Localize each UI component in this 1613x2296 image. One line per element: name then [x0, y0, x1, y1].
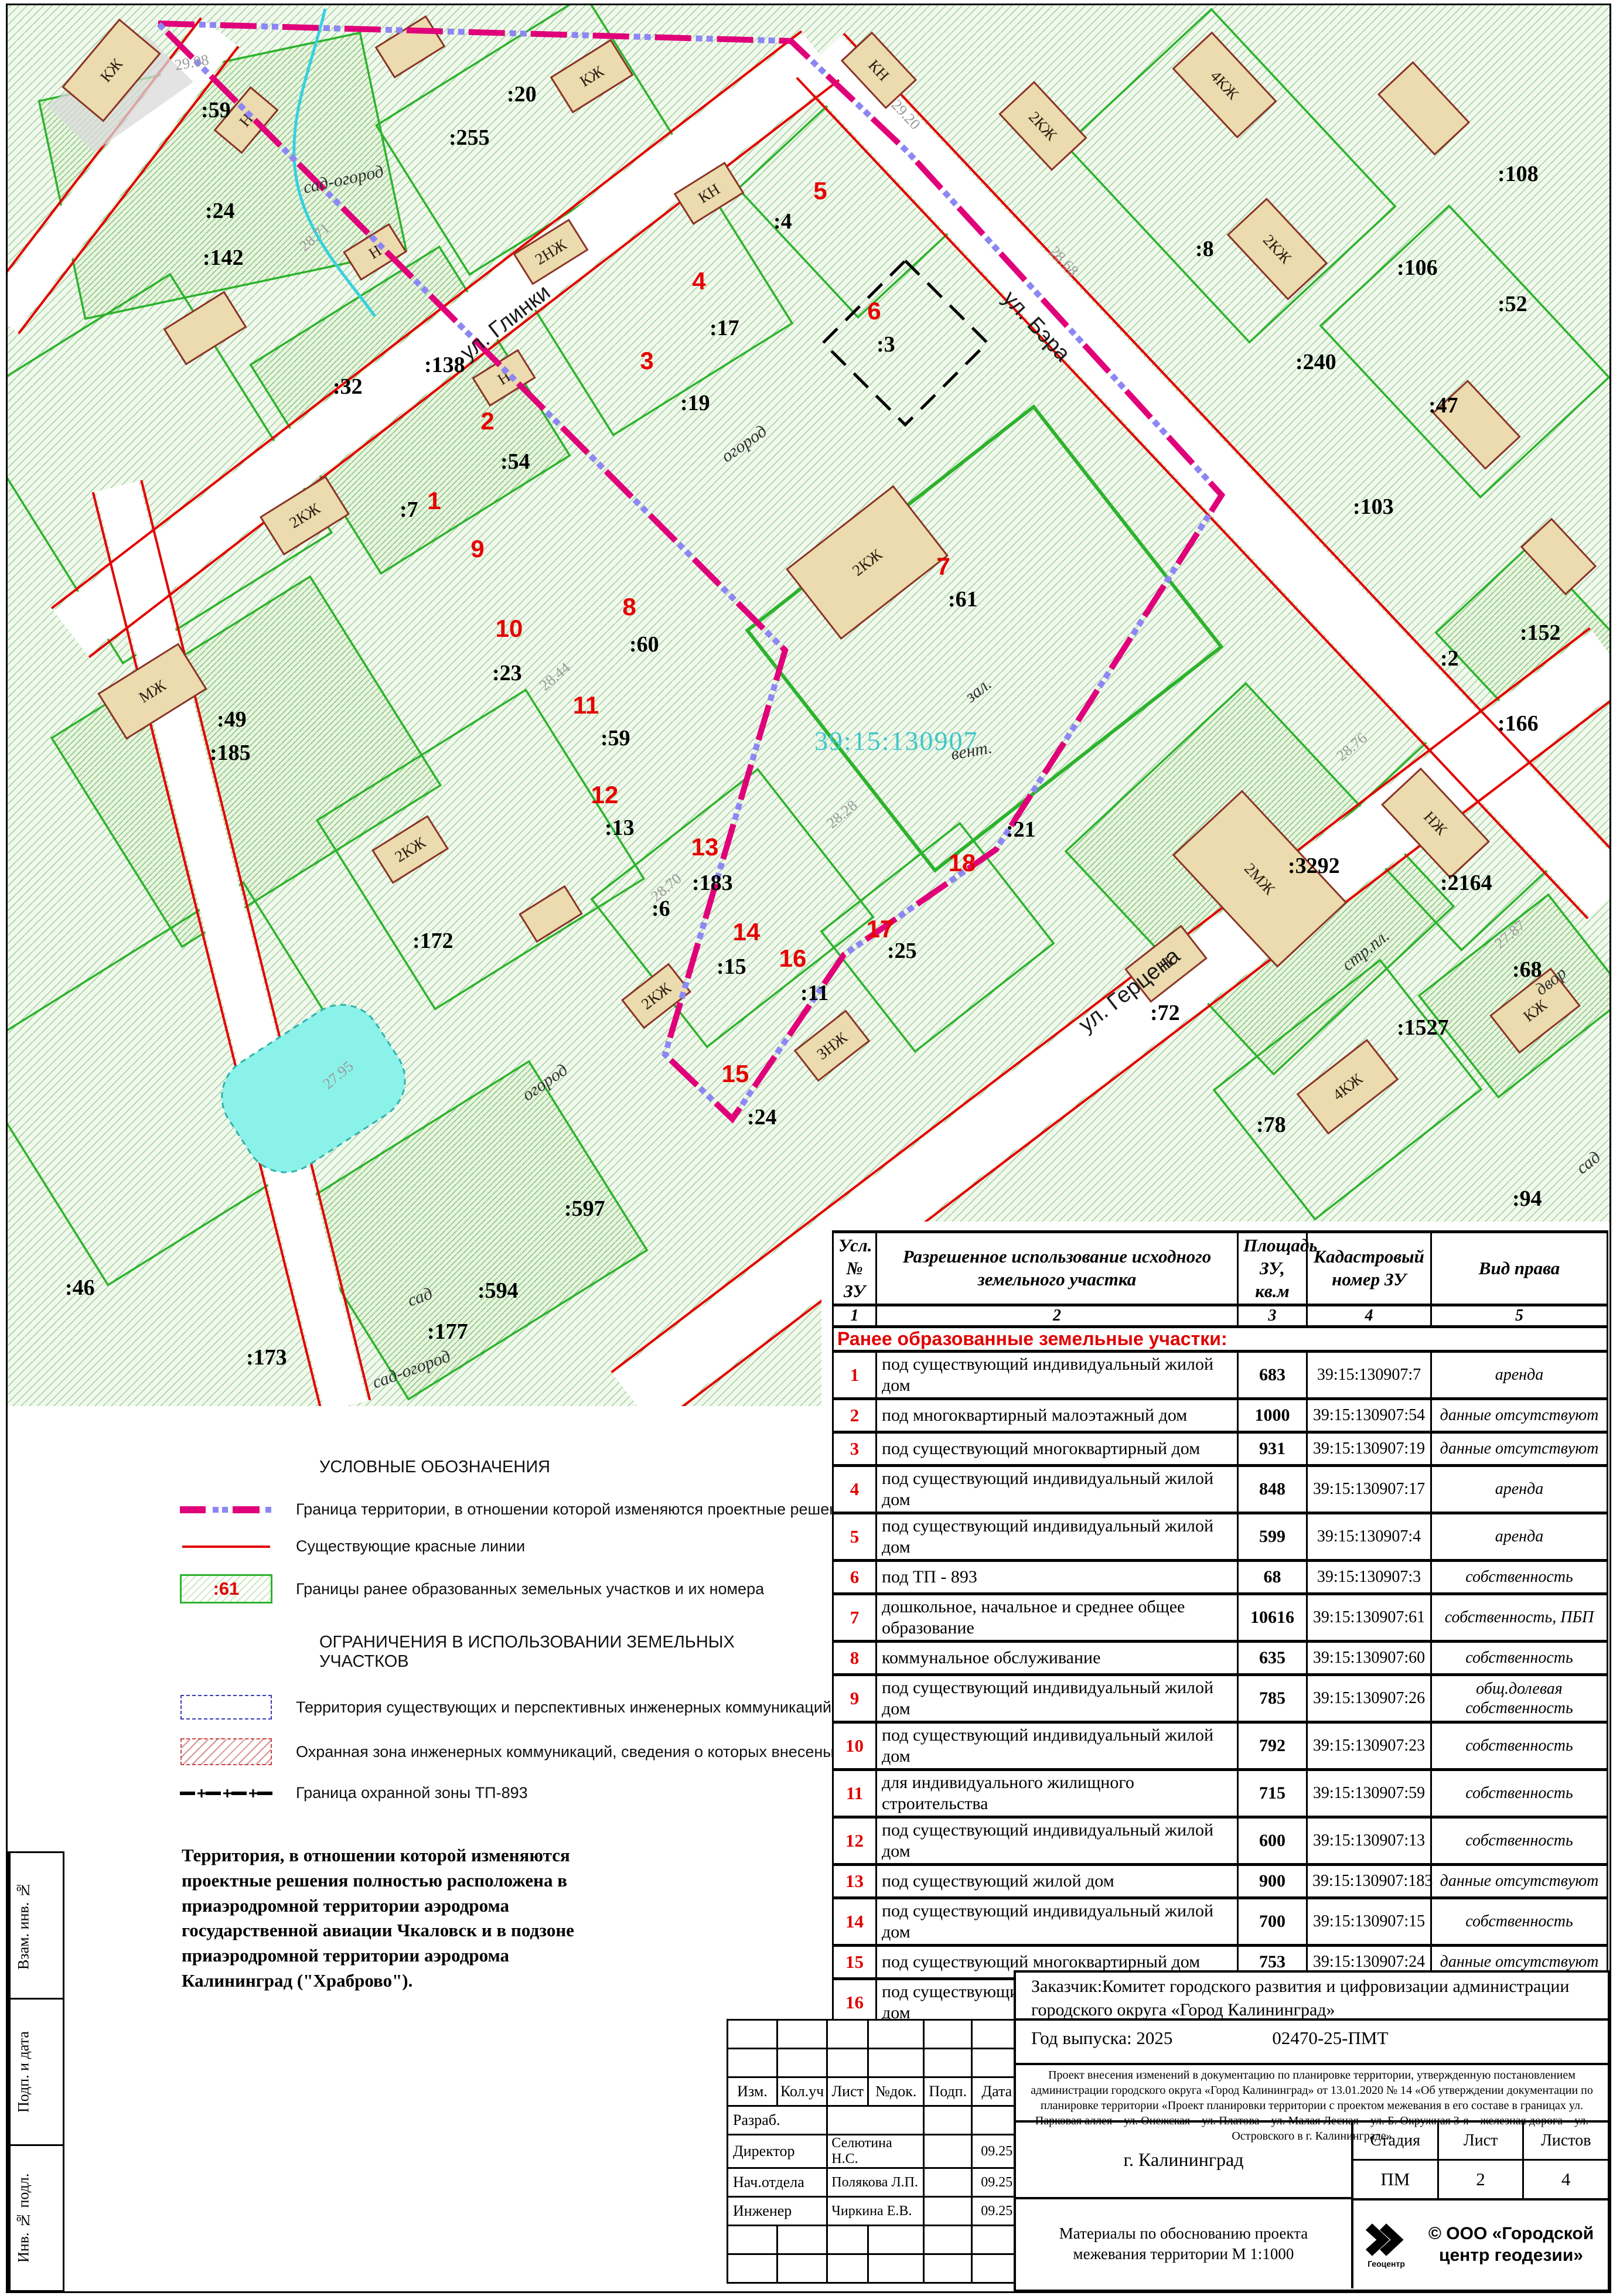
- legend-item-label: Границы ранее образованных земельных уча…: [296, 1580, 764, 1598]
- parcel-number-label: :142: [203, 245, 244, 270]
- parcel-number-label: :54: [500, 449, 530, 474]
- cell-area: 900: [1238, 1865, 1307, 1898]
- legend-item-label: Существующие красные линии: [296, 1537, 525, 1555]
- legend-item: Территория существующих и перспективных …: [180, 1695, 824, 1720]
- legend-restriction-items: Территория существующих и перспективных …: [180, 1695, 824, 1802]
- map-legend: УСЛОВНЫЕ ОБОЗНАЧЕНИЯ Граница территории,…: [180, 1458, 824, 1821]
- cell-cadastral-number: 39:15:130907:183: [1307, 1865, 1431, 1898]
- side-strip-cell: Взам. инв. №: [7, 1851, 64, 1998]
- cell-right-type: аренда: [1431, 1352, 1608, 1399]
- cell-area: 683: [1238, 1352, 1307, 1399]
- parcel-number-label: :177: [427, 1319, 468, 1344]
- parcel-number-label: :52: [1498, 292, 1527, 316]
- empty-cell: [777, 2254, 827, 2283]
- parcel-number-label: :20: [507, 82, 537, 107]
- cell-number: 8: [833, 1642, 877, 1675]
- table-colnum-row: 12345: [833, 1305, 1608, 1327]
- parcel-number-label: :3292: [1288, 854, 1340, 878]
- legend-item: Граница территории, в отношении которой …: [180, 1500, 824, 1519]
- cell-right-type: собственность: [1431, 1722, 1608, 1770]
- cell-number: 13: [833, 1865, 877, 1898]
- parcel-red-number: 12: [591, 781, 619, 808]
- legend-item-label: Охранная зона инженерных коммуникаций, с…: [296, 1743, 892, 1761]
- cell-permitted-use: дошкольное, начальное и среднее общее об…: [877, 1594, 1238, 1642]
- table-column-number: 4: [1307, 1305, 1431, 1327]
- title-block-bottom: г. Калининград Материалы по обоснованию …: [1016, 2123, 1608, 2288]
- parcel-number-label: :61: [948, 587, 978, 612]
- cell-area: 715: [1238, 1770, 1307, 1817]
- parcel-number-label: :78: [1256, 1113, 1286, 1137]
- cell-permitted-use: под существующий индивидуальный жилой до…: [877, 1817, 1238, 1865]
- cell-right-type: собственность: [1431, 1817, 1608, 1865]
- empty-cell: [777, 2226, 827, 2254]
- parcel-number-label: :594: [478, 1278, 519, 1303]
- geocentr-logo-icon: Геоцентр: [1362, 2221, 1411, 2268]
- parcel-number-label: :255: [449, 125, 490, 150]
- stage-header: Лист: [1439, 2123, 1525, 2159]
- cell-cadastral-number: 39:15:130907:54: [1307, 1399, 1431, 1432]
- parcel-number-label: :11: [800, 981, 829, 1005]
- cell-area: 1000: [1238, 1399, 1307, 1432]
- parcel-number-label: :173: [246, 1345, 287, 1370]
- cell-area: 600: [1238, 1817, 1307, 1865]
- parcel-number-label: :32: [333, 374, 363, 399]
- signature-sign: [924, 2106, 972, 2135]
- parcel-red-number: 14: [733, 918, 761, 946]
- cell-number: 6: [833, 1561, 877, 1594]
- parcel-number-label: :17: [710, 316, 739, 340]
- side-strip-label: Подп. и дата: [9, 2000, 37, 2144]
- cell-cadastral-number: 39:15:130907:13: [1307, 1817, 1431, 1865]
- table-column-number: 2: [877, 1305, 1238, 1327]
- cell-cadastral-number: 39:15:130907:60: [1307, 1642, 1431, 1675]
- parcel-number-label: :72: [1150, 1001, 1180, 1025]
- parcel-red-number: 10: [496, 615, 523, 642]
- cell-number: 15: [833, 1946, 877, 1979]
- empty-cell: [728, 2020, 777, 2049]
- parcel-number-label: :3: [877, 332, 895, 357]
- signature-sign: [924, 2168, 972, 2197]
- parcel-red-number: 11: [573, 691, 599, 719]
- parcel-red-number: 15: [722, 1060, 749, 1087]
- city-cell: г. Калининград: [1016, 2123, 1351, 2199]
- signature-row: ДиректорСелютина Н.С.09.25: [728, 2135, 1022, 2168]
- parcel-number-label: :59: [201, 98, 231, 122]
- parcel-number-label: :4: [773, 209, 792, 234]
- parcel-number-label: :1527: [1397, 1015, 1449, 1040]
- table-row: 2под многоквартирный малоэтажный дом1000…: [833, 1399, 1608, 1432]
- cell-right-type: аренда: [1431, 1466, 1608, 1513]
- parcel-number-label: :24: [747, 1105, 777, 1130]
- cell-right-type: данные отсутствуют: [1431, 1865, 1608, 1898]
- cell-permitted-use: под многоквартирный малоэтажный дом: [877, 1399, 1238, 1432]
- cell-right-type: собственность, ПБП: [1431, 1594, 1608, 1642]
- table-row: 11для индивидуального жилищного строител…: [833, 1770, 1608, 1817]
- cell-right-type: собственность: [1431, 1770, 1608, 1817]
- signature-col-header: Изм.: [728, 2077, 777, 2106]
- cell-cadastral-number: 39:15:130907:15: [1307, 1898, 1431, 1946]
- cell-number: 7: [833, 1594, 877, 1642]
- parcel-number-label: :19: [680, 391, 710, 415]
- parcel-number-label: :2164: [1440, 871, 1492, 895]
- parcel-red-number: 7: [936, 552, 950, 580]
- table-column-number: 1: [833, 1305, 877, 1327]
- cell-right-type: собственность: [1431, 1898, 1608, 1946]
- cell-area: 68: [1238, 1561, 1307, 1594]
- signature-col-header: Кол.уч: [777, 2077, 827, 2106]
- cell-permitted-use: под ТП - 893: [877, 1561, 1238, 1594]
- airfield-note: Территория, в отношении которой изменяют…: [182, 1843, 592, 1994]
- cell-cadastral-number: 39:15:130907:26: [1307, 1675, 1431, 1722]
- cell-number: 4: [833, 1466, 877, 1513]
- side-strip: Взам. инв. №Подп. и датаИнв. № подл.: [7, 1851, 64, 2292]
- signature-col-header: №док.: [868, 2077, 924, 2106]
- cell-area: 700: [1238, 1898, 1307, 1946]
- signature-col-header: Лист: [827, 2077, 868, 2106]
- cell-area: 599: [1238, 1513, 1307, 1561]
- parcel-red-number: 16: [779, 944, 807, 972]
- cell-number: 11: [833, 1770, 877, 1817]
- empty-cell: [924, 2254, 972, 2283]
- parcel-number-label: :13: [605, 816, 635, 840]
- cell-cadastral-number: 39:15:130907:4: [1307, 1513, 1431, 1561]
- legend-item-label: Граница охранной зоны ТП-893: [296, 1784, 528, 1802]
- table-row: 4под существующий индивидуальный жилой д…: [833, 1466, 1608, 1513]
- signature-empty-row: [728, 2226, 1022, 2254]
- cell-number: 12: [833, 1817, 877, 1865]
- cell-permitted-use: под существующий многоквартирный дом: [877, 1432, 1238, 1466]
- empty-cell: [827, 2254, 868, 2283]
- signature-header-row: Изм.Кол.учЛист№док.Подп.Дата: [728, 2077, 1022, 2106]
- parcel-number-label: :59: [601, 726, 630, 750]
- empty-cell: [728, 2049, 777, 2077]
- project-code: 02470-25-ПМТ: [1272, 2028, 1388, 2049]
- parcel-red-number: 4: [692, 267, 706, 295]
- signature-sign: [924, 2197, 972, 2226]
- empty-cell: [827, 2049, 868, 2077]
- red-line-symbol: [180, 1546, 272, 1548]
- cell-right-type: собственность: [1431, 1642, 1608, 1675]
- title-block: Заказчик:Комитет городского развития и ц…: [1014, 1970, 1610, 2292]
- empty-cell: [827, 2020, 868, 2049]
- signature-col-header: Подп.: [924, 2077, 972, 2106]
- parcel-number-label: :106: [1397, 255, 1438, 280]
- empty-cell: [777, 2049, 827, 2077]
- parcel-red-number: 6: [867, 297, 881, 325]
- parcel-red-number: 3: [640, 347, 653, 374]
- cell-permitted-use: под существующий индивидуальный жилой до…: [877, 1898, 1238, 1946]
- table-column-header: Кадастровый номер ЗУ: [1307, 1232, 1431, 1305]
- legend-items: Граница территории, в отношении которой …: [180, 1500, 824, 1604]
- year-of-issue: Год выпуска: 2025: [1031, 2028, 1172, 2049]
- stage-value: 4: [1524, 2161, 1608, 2198]
- parcel-number-label: :152: [1520, 620, 1561, 645]
- parcel-number-label: :138: [424, 353, 465, 377]
- cell-number: 10: [833, 1722, 877, 1770]
- empty-cell: [868, 2049, 924, 2077]
- cell-cadastral-number: 39:15:130907:23: [1307, 1722, 1431, 1770]
- table-row: 3под существующий многоквартирный дом931…: [833, 1432, 1608, 1466]
- cell-permitted-use: под существующий индивидуальный жилой до…: [877, 1675, 1238, 1722]
- cell-area: 635: [1238, 1642, 1307, 1675]
- legend-item-label: Граница территории, в отношении которой …: [296, 1500, 855, 1519]
- table-row: 13под существующий жилой дом90039:15:130…: [833, 1865, 1608, 1898]
- empty-cell: [728, 2226, 777, 2254]
- parcel-red-number: 5: [813, 177, 827, 204]
- parcel-number-label: :24: [205, 199, 235, 223]
- table-column-header: Вид права: [1431, 1232, 1608, 1305]
- signature-name: Чиркина Е.В.: [827, 2197, 924, 2226]
- signature-name: [827, 2106, 924, 2135]
- parcel-number-label: :172: [412, 929, 453, 953]
- table-row: 10под существующий индивидуальный жилой …: [833, 1722, 1608, 1770]
- cell-permitted-use: коммунальное обслуживание: [877, 1642, 1238, 1675]
- parcel-red-number: 18: [949, 849, 976, 876]
- signature-row: Разраб.: [728, 2106, 1022, 2135]
- legend-item: Граница охранной зоны ТП-893: [180, 1784, 824, 1802]
- cell-number: 1: [833, 1352, 877, 1399]
- cell-number: 2: [833, 1399, 877, 1432]
- stage-header: Стадия: [1353, 2123, 1439, 2159]
- cell-permitted-use: для индивидуального жилищного строительс…: [877, 1770, 1238, 1817]
- empty-cell: [924, 2020, 972, 2049]
- parcel-red-number: 13: [691, 833, 719, 861]
- tp-zone-boundary-symbol: [180, 1787, 272, 1800]
- cell-cadastral-number: 39:15:130907:61: [1307, 1594, 1431, 1642]
- signature-role: Разраб.: [728, 2106, 827, 2135]
- legend-title: УСЛОВНЫЕ ОБОЗНАЧЕНИЯ: [319, 1458, 824, 1477]
- stage-value-row: ПМ24: [1353, 2161, 1608, 2201]
- parcel-red-number: 17: [867, 915, 894, 943]
- stage-value: 2: [1439, 2161, 1525, 2198]
- parcel-red-number: 8: [622, 593, 636, 620]
- parcel-number-label: :94: [1512, 1186, 1542, 1211]
- utility-protection-zone-symbol: [180, 1738, 272, 1765]
- cadastral-map: КЖНКЖКН2КЖ4КЖ2КЖ2НЖКН2КЖМЖ2КЖ2МЖНЖКЖ4КЖН…: [7, 5, 1610, 1406]
- cell-cadastral-number: 39:15:130907:3: [1307, 1561, 1431, 1594]
- table-row: 5под существующий индивидуальный жилой д…: [833, 1513, 1608, 1561]
- table-row: 8коммунальное обслуживание63539:15:13090…: [833, 1642, 1608, 1675]
- cell-right-type: общ.долевая собственность: [1431, 1675, 1608, 1722]
- stage-value: ПМ: [1353, 2161, 1439, 2198]
- signature-name: Полякова Л.П.: [827, 2168, 924, 2197]
- signature-row: Нач.отделаПолякова Л.П.09.25: [728, 2168, 1022, 2197]
- copyright-text: © ООО «Городской центр геодезии»: [1419, 2223, 1608, 2267]
- table-header-row: Усл. № ЗУРазрешенное использование исход…: [833, 1232, 1608, 1305]
- cell-permitted-use: под существующий индивидуальный жилой до…: [877, 1466, 1238, 1513]
- signature-role: Инженер: [728, 2197, 827, 2226]
- parcel-red-number: 1: [427, 487, 441, 514]
- year-row: Год выпуска: 2025 02470-25-ПМТ: [1016, 2021, 1608, 2065]
- table-row: 1под существующий индивидуальный жилой д…: [833, 1352, 1608, 1399]
- parcel-number-label: :47: [1428, 393, 1458, 418]
- parcel-number-label: :7: [400, 497, 418, 522]
- signature-role: Нач.отдела: [728, 2168, 827, 2197]
- signature-name: Селютина Н.С.: [827, 2135, 924, 2168]
- table-column-number: 5: [1431, 1305, 1608, 1327]
- empty-cell: [868, 2226, 924, 2254]
- empty-cell: [777, 2020, 827, 2049]
- side-strip-cell: Подп. и дата: [7, 1998, 64, 2144]
- legend-item: :61Границы ранее образованных земельных …: [180, 1574, 824, 1604]
- empty-cell: [728, 2254, 777, 2283]
- parcel-number-label: :597: [564, 1196, 605, 1221]
- side-strip-label: Взам. инв. №: [9, 1853, 37, 1998]
- cell-permitted-use: под существующий индивидуальный жилой до…: [877, 1352, 1238, 1399]
- cell-right-type: данные отсутствуют: [1431, 1399, 1608, 1432]
- table-section-header: Ранее образованные земельные участки:: [833, 1327, 1608, 1352]
- parcel-number-label: :49: [217, 707, 247, 732]
- parcel-number-label: :103: [1353, 494, 1394, 519]
- customer-line: Заказчик:Комитет городского развития и ц…: [1016, 1973, 1608, 2021]
- side-strip-cell: Инв. № подл.: [7, 2144, 64, 2292]
- signature-empty-row: [728, 2020, 1022, 2049]
- table-row: 14под существующий индивидуальный жилой …: [833, 1898, 1608, 1946]
- table-column-header: Площадь ЗУ, кв.м: [1238, 1232, 1307, 1305]
- legend-item-label: Территория существующих и перспективных …: [296, 1698, 831, 1717]
- parcel-number-label: :46: [65, 1275, 95, 1300]
- cell-right-type: аренда: [1431, 1513, 1608, 1561]
- signature-grid: Изм.Кол.учЛист№док.Подп.ДатаРазраб.Дирек…: [727, 2019, 1022, 2284]
- parcel-number-label: :2: [1440, 646, 1459, 671]
- side-strip-label: Инв. № подл.: [9, 2146, 37, 2290]
- signature-row: ИнженерЧиркина Е.В.09.25: [728, 2197, 1022, 2226]
- empty-cell: [924, 2226, 972, 2254]
- cell-cadastral-number: 39:15:130907:17: [1307, 1466, 1431, 1513]
- parcel-number-label: :15: [717, 954, 746, 979]
- parcel-number-label: :185: [210, 741, 251, 765]
- table-column-header: Разрешенное использование исходного земе…: [877, 1232, 1238, 1305]
- legend-restrictions-title: ОГРАНИЧЕНИЯ В ИСПОЛЬЗОВАНИИ ЗЕМЕЛЬНЫХ УЧ…: [319, 1633, 824, 1671]
- empty-cell: [868, 2020, 924, 2049]
- table-row: 6под ТП - 8936839:15:130907:3собственнос…: [833, 1561, 1608, 1594]
- empty-cell: [868, 2254, 924, 2283]
- parcel-number-label: :183: [692, 871, 733, 895]
- cell-permitted-use: под существующий жилой дом: [877, 1865, 1238, 1898]
- signature-empty-row: [728, 2254, 1022, 2283]
- cell-area: 848: [1238, 1466, 1307, 1513]
- utility-territory-symbol: [180, 1695, 272, 1720]
- table-section-row: Ранее образованные земельные участки:: [833, 1327, 1608, 1352]
- parcel-number-label: :108: [1498, 162, 1539, 186]
- signature-grid-body: Изм.Кол.учЛист№док.Подп.ДатаРазраб.Дирек…: [728, 2020, 1022, 2283]
- parcel-number-label: :68: [1512, 957, 1542, 982]
- cell-permitted-use: под существующий индивидуальный жилой до…: [877, 1513, 1238, 1561]
- parcel-red-number: 2: [480, 407, 494, 435]
- signature-role: Директор: [728, 2135, 827, 2168]
- cell-cadastral-number: 39:15:130907:19: [1307, 1432, 1431, 1466]
- parcel-red-number: 9: [470, 535, 484, 562]
- company-cell: Геоцентр © ООО «Городской центр геодезии…: [1353, 2201, 1608, 2288]
- cell-right-type: данные отсутствуют: [1431, 1432, 1608, 1466]
- table-column-header: Усл. № ЗУ: [833, 1232, 877, 1305]
- empty-cell: [827, 2226, 868, 2254]
- table-row: 12под существующий индивидуальный жилой …: [833, 1817, 1608, 1865]
- cell-area: 10616: [1238, 1594, 1307, 1642]
- legend-item: Охранная зона инженерных коммуникаций, с…: [180, 1738, 824, 1765]
- cell-permitted-use: под существующий индивидуальный жилой до…: [877, 1722, 1238, 1770]
- logo-caption: Геоцентр: [1362, 2259, 1411, 2268]
- cell-right-type: собственность: [1431, 1561, 1608, 1594]
- parcel-number-label: :166: [1498, 711, 1539, 736]
- materials-cell: Материалы по обоснованию проекта межеван…: [1016, 2199, 1351, 2288]
- cell-number: 14: [833, 1898, 877, 1946]
- parcel-number-label: :8: [1195, 237, 1214, 261]
- legend-item: Существующие красные линии: [180, 1537, 824, 1555]
- empty-cell: [924, 2049, 972, 2077]
- cell-area: 792: [1238, 1722, 1307, 1770]
- parcel-number-label: :240: [1295, 350, 1336, 374]
- cell-number: 3: [833, 1432, 877, 1466]
- cell-area: 931: [1238, 1432, 1307, 1466]
- signature-empty-row: [728, 2049, 1022, 2077]
- parcel-number-label: :21: [1006, 817, 1036, 842]
- cell-cadastral-number: 39:15:130907:7: [1307, 1352, 1431, 1399]
- territory-boundary-symbol: [180, 1506, 272, 1514]
- signature-sign: [924, 2135, 972, 2168]
- parcel-number-label: :60: [629, 632, 659, 657]
- parcel-boundary-symbol: :61: [180, 1574, 272, 1604]
- stage-header: Листов: [1524, 2123, 1608, 2159]
- table-row: 7дошкольное, начальное и среднее общее о…: [833, 1594, 1608, 1642]
- project-description: Проект внесения изменений в документацию…: [1016, 2065, 1608, 2123]
- cell-number: 9: [833, 1675, 877, 1722]
- cell-cadastral-number: 39:15:130907:59: [1307, 1770, 1431, 1817]
- table-row: 9под существующий индивидуальный жилой д…: [833, 1675, 1608, 1722]
- stage-header-row: СтадияЛистЛистов: [1353, 2123, 1608, 2161]
- cell-area: 785: [1238, 1675, 1307, 1722]
- cell-number: 5: [833, 1513, 877, 1561]
- table-column-number: 3: [1238, 1305, 1307, 1327]
- parcel-number-label: :23: [492, 661, 522, 685]
